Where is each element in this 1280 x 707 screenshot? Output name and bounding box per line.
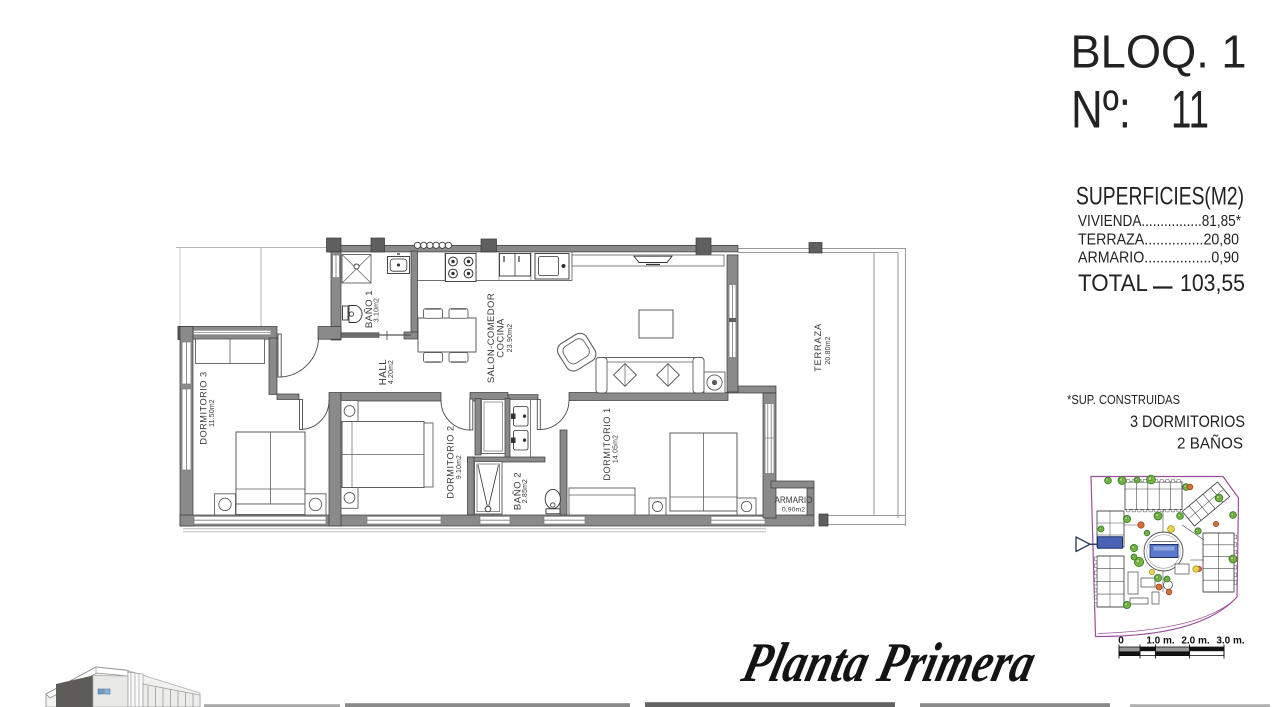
svg-text:VIVIENDA................81,85*: VIVIENDA................81,85*: [1078, 213, 1241, 230]
svg-text:TERRAZA...............20,80: TERRAZA...............20,80: [1078, 231, 1239, 248]
svg-text:ARMARIO: ARMARIO: [775, 494, 813, 505]
svg-text:3.10m2: 3.10m2: [374, 298, 381, 322]
svg-text:14.05m2: 14.05m2: [613, 435, 620, 463]
svg-text:20.80m2: 20.80m2: [825, 336, 832, 364]
svg-text:TERRAZA: TERRAZA: [813, 323, 823, 372]
svg-text:DORMITORIO 2: DORMITORIO 2: [446, 425, 456, 498]
svg-text:TOTAL: TOTAL: [1078, 270, 1148, 297]
svg-text:COCINA: COCINA: [496, 318, 507, 358]
svg-text:2.85m2: 2.85m2: [522, 479, 529, 503]
svg-text:103,55: 103,55: [1180, 270, 1245, 297]
svg-text:9.10m2: 9.10m2: [456, 455, 463, 479]
svg-text:0,90m2: 0,90m2: [782, 507, 805, 514]
svg-text:3.0 m.: 3.0 m.: [1216, 636, 1245, 647]
svg-text:Planta Primera: Planta Primera: [736, 632, 1042, 694]
svg-text:4.20m2: 4.20m2: [388, 360, 395, 384]
svg-text:3 DORMITORIOS: 3 DORMITORIOS: [1130, 413, 1245, 431]
svg-text:2 BAÑOS: 2 BAÑOS: [1177, 433, 1243, 453]
svg-text:SUPERFICIES(M2): SUPERFICIES(M2): [1076, 183, 1244, 211]
svg-text:2.0 m.: 2.0 m.: [1181, 636, 1210, 647]
svg-text:11.50m2: 11.50m2: [209, 399, 216, 427]
svg-text:DORMITORIO 1: DORMITORIO 1: [602, 407, 612, 480]
svg-text:*SUP. CONSTRUIDAS: *SUP. CONSTRUIDAS: [1067, 392, 1180, 407]
svg-text:23.90m2: 23.90m2: [507, 324, 514, 353]
svg-text:11: 11: [1171, 81, 1209, 140]
svg-text:DORMITORIO 3: DORMITORIO 3: [199, 371, 209, 444]
svg-text:BLOQ. 1: BLOQ. 1: [1071, 26, 1247, 78]
svg-text:1.0 m.: 1.0 m.: [1146, 636, 1175, 647]
svg-text:Nº:: Nº:: [1071, 81, 1131, 140]
svg-text:ARMARIO.................0,90: ARMARIO.................0,90: [1078, 250, 1239, 267]
